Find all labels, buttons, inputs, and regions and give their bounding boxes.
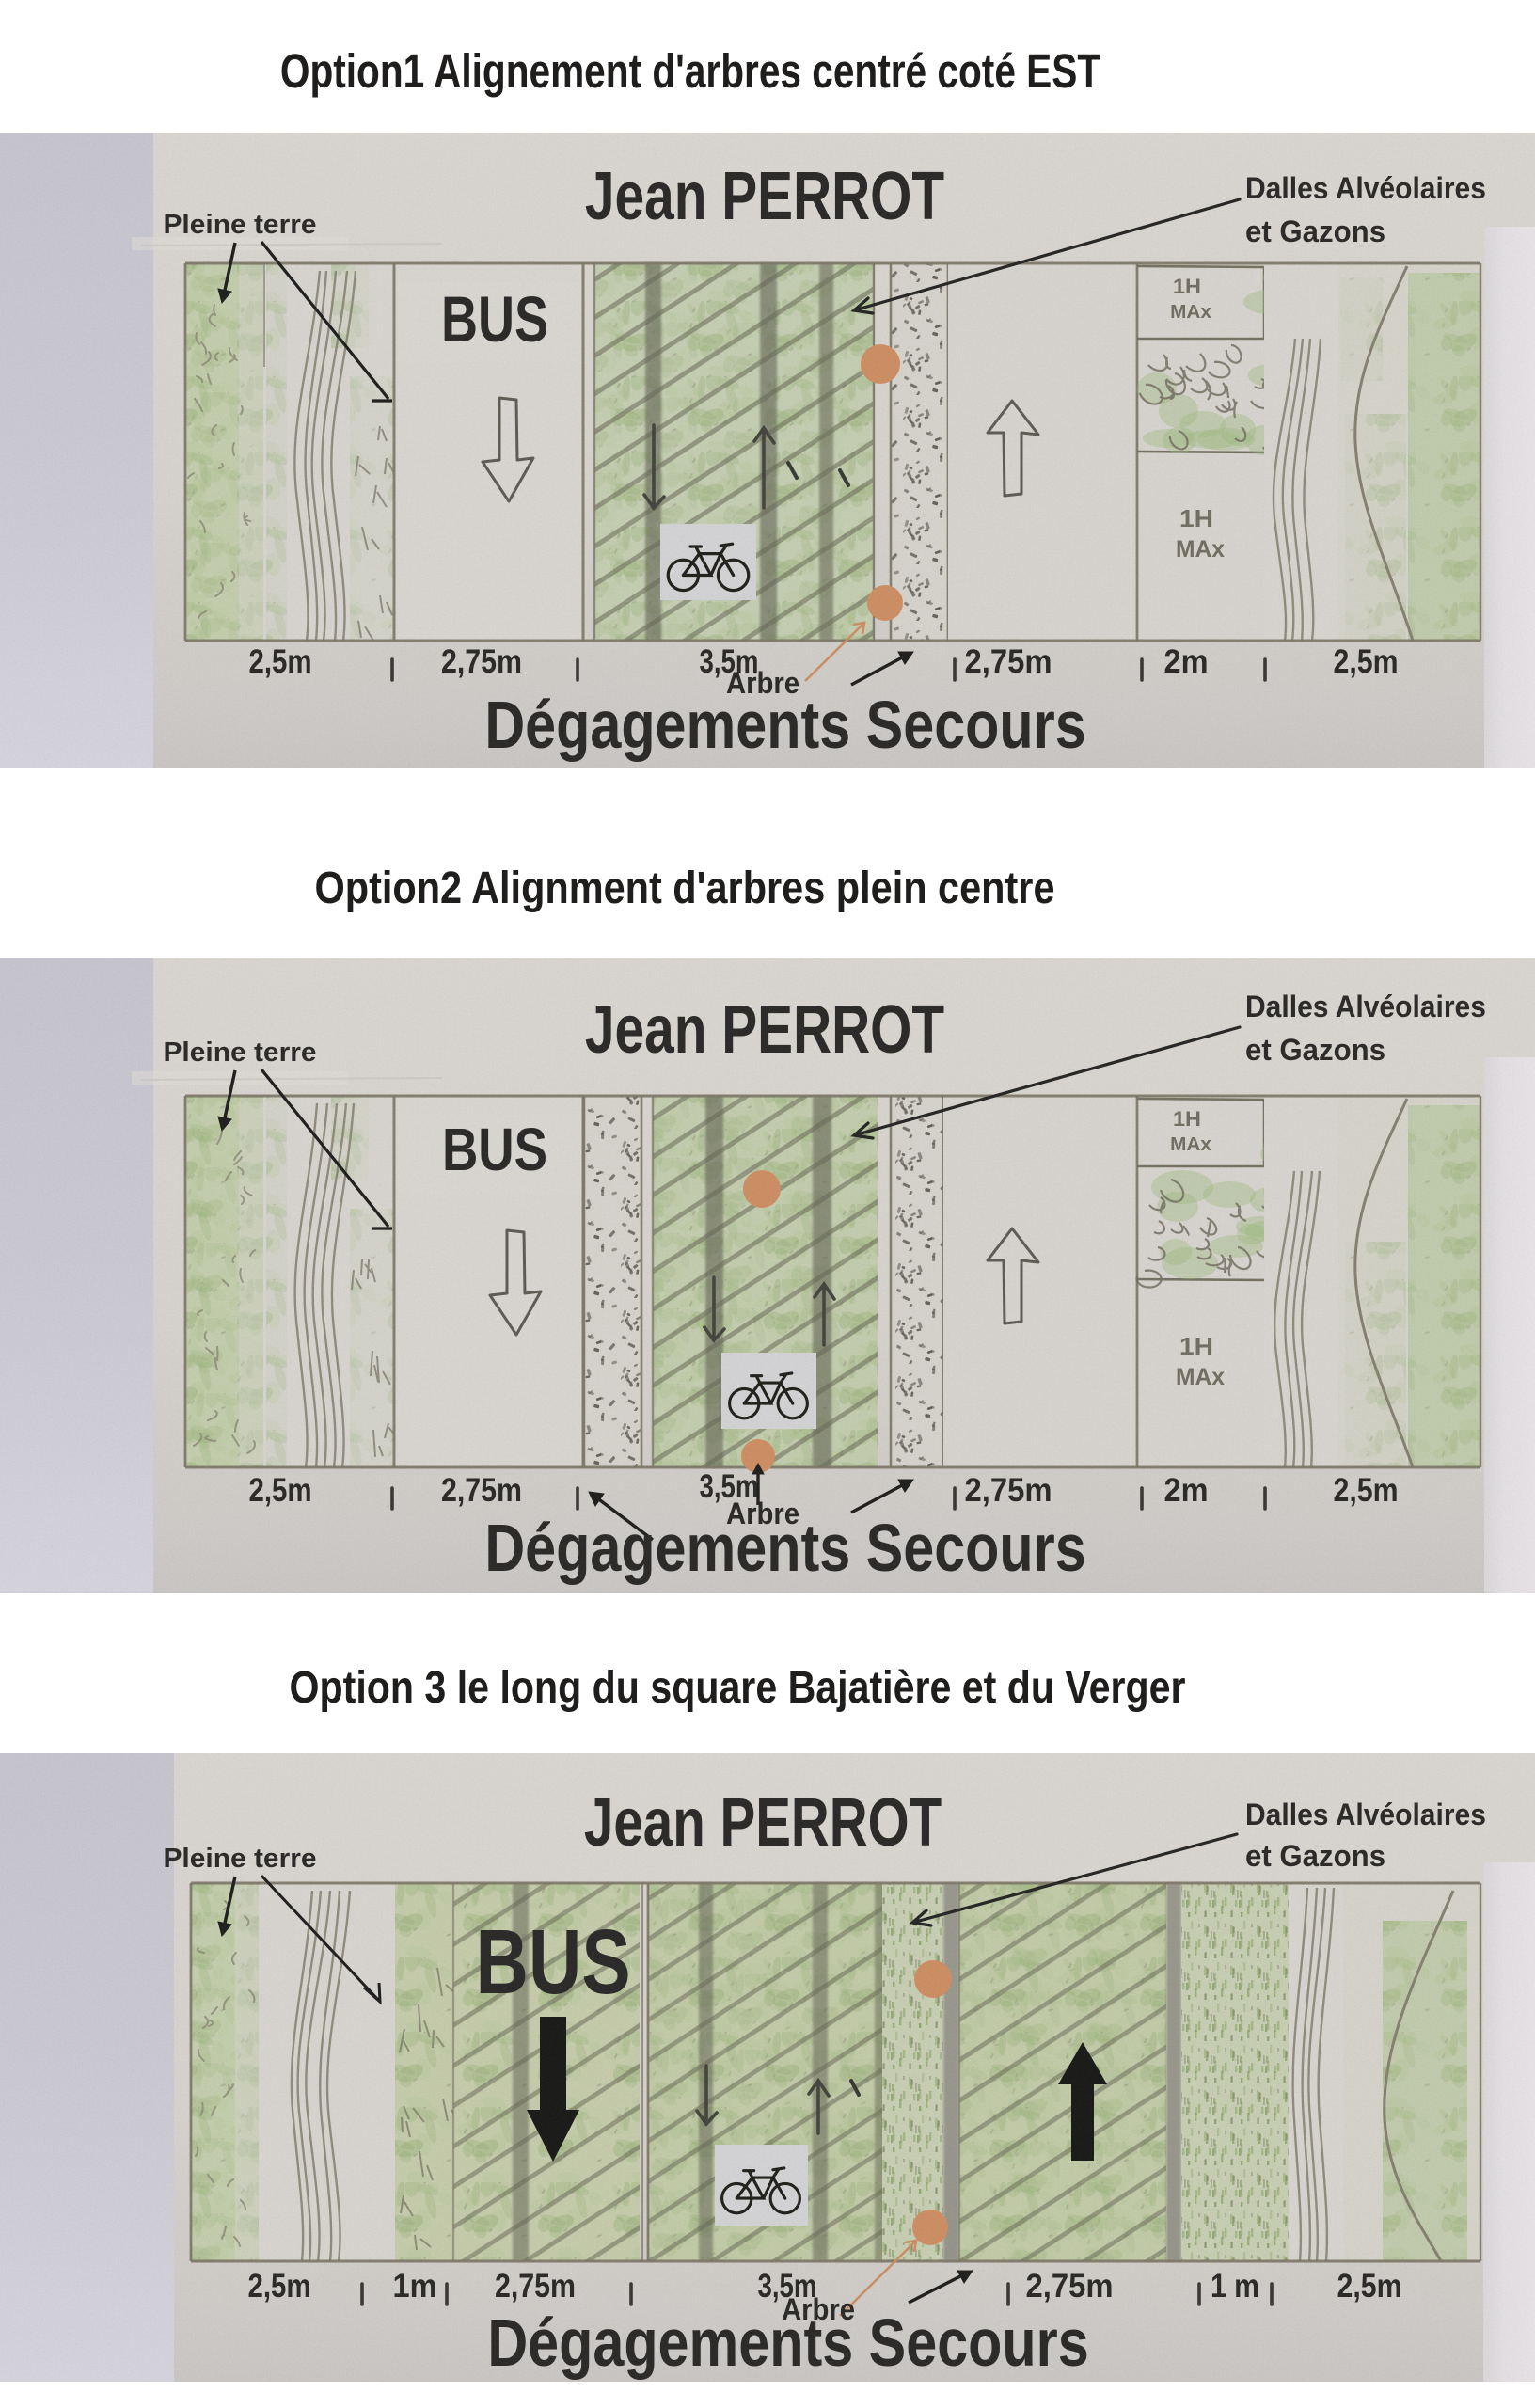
svg-text:Option1 Alignement d'arbres ce: Option1 Alignement d'arbres centré coté …	[280, 44, 1100, 98]
svg-text:Option2 Alignment d'arbres ple: Option2 Alignment d'arbres plein centre	[314, 862, 1054, 913]
svg-text:Option 3 le long du square Baj: Option 3 le long du square Bajatière et …	[290, 1663, 1186, 1713]
